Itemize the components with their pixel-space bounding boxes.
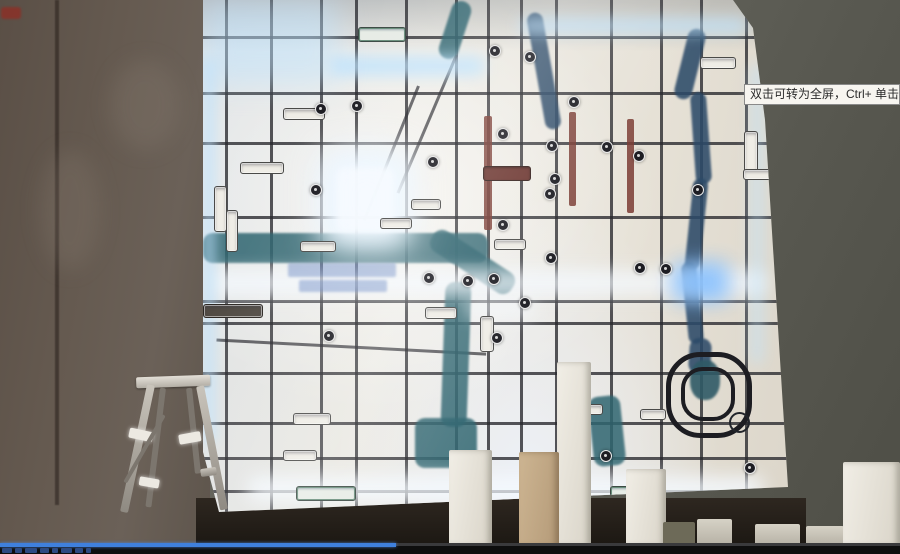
poi-marker <box>546 140 558 152</box>
map-label-chip <box>293 413 331 425</box>
map-label-chip <box>483 166 531 181</box>
title-glyph-blob <box>15 548 22 553</box>
poi-marker <box>633 150 645 162</box>
road-line <box>520 0 523 514</box>
road-line <box>203 490 793 493</box>
map-label-chip <box>700 57 736 69</box>
title-glyph-blob <box>52 548 58 553</box>
map-label-chip <box>358 27 406 42</box>
poi-marker <box>351 100 363 112</box>
poi-marker <box>545 252 557 264</box>
video-title-text <box>2 548 91 553</box>
small-ring-marker <box>729 412 750 433</box>
map-label-chip <box>494 239 526 250</box>
poi-marker <box>524 51 536 63</box>
poi-marker <box>544 188 556 200</box>
poi-marker <box>634 262 646 274</box>
poi-marker <box>497 219 509 231</box>
metro-line-bar <box>627 119 634 213</box>
poi-marker <box>549 173 561 185</box>
wall-light-streak <box>40 150 100 270</box>
poi-marker <box>491 332 503 344</box>
poi-marker <box>315 103 327 115</box>
wall-left <box>0 0 210 554</box>
storage-box <box>843 462 900 546</box>
poi-marker <box>601 141 613 153</box>
title-glyph-blob <box>75 548 83 553</box>
wall-light-streak <box>110 60 180 150</box>
map-label-chip <box>240 162 284 174</box>
map-display <box>203 0 793 514</box>
poi-marker <box>489 45 501 57</box>
poi-marker <box>568 96 580 108</box>
title-glyph-blob <box>40 548 49 553</box>
poi-marker <box>600 450 612 462</box>
river <box>440 282 471 428</box>
poi-marker <box>744 462 756 474</box>
title-glyph-blob <box>25 548 37 553</box>
map-label-chip <box>425 307 457 319</box>
video-player-bar[interactable] <box>0 543 900 554</box>
poi-marker <box>427 156 439 168</box>
progress-fill[interactable] <box>0 543 396 547</box>
storage-box <box>519 452 559 546</box>
map-label-chip <box>296 486 356 501</box>
poi-marker <box>310 184 322 196</box>
road-line <box>745 0 748 514</box>
tooltip: 双击可转为全屏，Ctrl+ 单击可转为 <box>744 84 900 105</box>
red-mark <box>1 7 21 19</box>
storage-box <box>697 519 732 546</box>
metro-line-bar <box>569 112 576 206</box>
ring-road-inner <box>681 367 735 421</box>
map-label-chip <box>411 199 441 210</box>
storage-box <box>626 469 666 546</box>
map-label-chip <box>743 169 777 180</box>
poi-marker <box>423 272 435 284</box>
map-label-chip <box>203 304 263 318</box>
road-line <box>203 300 793 303</box>
road-line <box>203 322 793 325</box>
poi-marker <box>660 263 672 275</box>
map-label-chip <box>380 218 412 229</box>
map-label-chip <box>300 241 336 252</box>
storage-box <box>449 450 492 546</box>
video-frame[interactable]: 双击可转为全屏，Ctrl+ 单击可转为 <box>0 0 900 554</box>
title-glyph-blob <box>2 548 12 553</box>
poi-marker <box>323 330 335 342</box>
poi-marker <box>692 184 704 196</box>
map-label-chip <box>283 450 317 461</box>
watermark <box>288 263 396 277</box>
poi-marker <box>488 273 500 285</box>
poi-marker <box>497 128 509 140</box>
map-label-chip <box>226 210 238 252</box>
title-glyph-blob <box>61 548 72 553</box>
poi-marker <box>462 275 474 287</box>
tooltip-text: 双击可转为全屏，Ctrl+ 单击可转为 <box>750 87 900 101</box>
map-label-chip <box>640 409 666 420</box>
storage-box <box>557 362 591 546</box>
road-line <box>660 0 663 514</box>
title-glyph-blob <box>86 548 91 553</box>
poi-marker <box>519 297 531 309</box>
watermark <box>299 280 387 292</box>
